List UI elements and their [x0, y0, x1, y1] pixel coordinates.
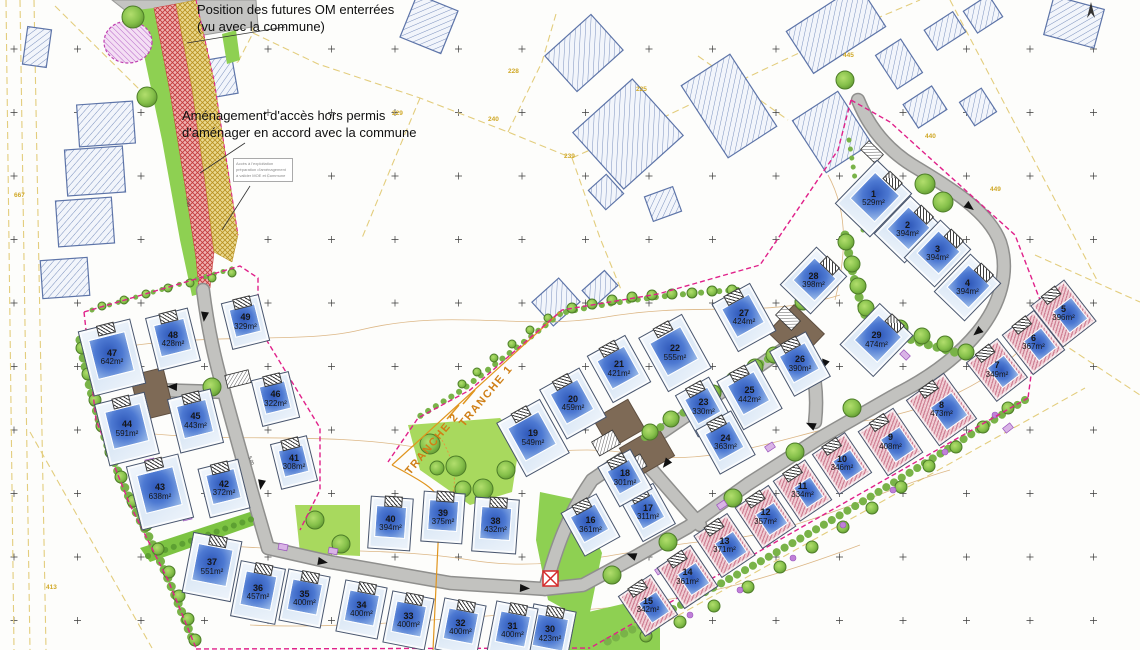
survey-cross — [900, 173, 907, 180]
lot-area: 428m² — [162, 340, 185, 348]
survey-cross — [392, 173, 399, 180]
lot-label: 16361m² — [571, 501, 610, 549]
tree-icon — [603, 566, 621, 584]
access-note: Aménagement d'accès hors permis d'aménag… — [182, 108, 416, 142]
tree-icon — [587, 299, 597, 309]
lot-area: 301m² — [614, 479, 637, 487]
lot-label: 46322m² — [257, 376, 294, 422]
survey-cross — [265, 490, 272, 497]
tree-icon — [473, 368, 481, 376]
tree-icon — [430, 461, 444, 475]
survey-cross — [773, 427, 780, 434]
tree-icon — [786, 443, 804, 461]
tree-icon — [915, 174, 935, 194]
existing-building — [55, 197, 114, 247]
tree-icon — [115, 471, 127, 483]
cadastral-parcel-number: 229 — [392, 110, 403, 117]
tree-icon — [923, 460, 935, 472]
lot-area: 334m² — [791, 491, 814, 499]
existing-building — [64, 146, 125, 196]
survey-cross — [519, 300, 526, 307]
survey-cross — [1090, 554, 1097, 561]
existing-building — [903, 86, 947, 128]
cadastral-parcel-number: 240 — [488, 116, 499, 123]
survey-cross — [138, 109, 145, 116]
cadastral-parcel-number: 667 — [14, 192, 25, 199]
cadastral-parcel-number: 449 — [990, 186, 1001, 193]
survey-cross — [455, 173, 462, 180]
survey-cross — [11, 554, 18, 561]
survey-cross — [1090, 109, 1097, 116]
utility-box — [765, 442, 776, 452]
survey-cross — [455, 363, 462, 370]
tree-icon — [774, 561, 786, 573]
survey-cross — [709, 617, 716, 624]
survey-cross — [74, 554, 81, 561]
survey-cross — [582, 363, 589, 370]
tree-icon — [977, 421, 989, 433]
survey-cross — [11, 363, 18, 370]
survey-cross — [138, 617, 145, 624]
lot-label: 9408m² — [870, 416, 911, 468]
existing-building — [924, 12, 966, 51]
lot-area: 346m² — [831, 464, 854, 472]
survey-cross — [11, 173, 18, 180]
lot-area: 361m² — [676, 578, 699, 586]
survey-cross — [74, 46, 81, 53]
survey-cross — [455, 236, 462, 243]
survey-cross — [709, 490, 716, 497]
lot-label: 14361m² — [668, 553, 707, 601]
survey-cross — [1090, 236, 1097, 243]
lot-area: 330m² — [692, 408, 715, 416]
lot-label: 33400m² — [388, 595, 429, 646]
survey-cross — [392, 46, 399, 53]
lot-label: 22555m² — [651, 323, 699, 383]
lot-area: 408m² — [879, 443, 902, 451]
existing-building — [876, 39, 923, 89]
survey-cross — [519, 363, 526, 370]
survey-cross — [138, 173, 145, 180]
survey-cross — [74, 490, 81, 497]
lot-area: 642m² — [101, 358, 124, 366]
tree-icon — [182, 613, 194, 625]
survey-cross — [836, 173, 843, 180]
survey-cross — [1027, 236, 1034, 243]
tree-icon — [850, 278, 866, 294]
lot-area: 342m² — [637, 606, 660, 614]
lot-area: 432m² — [484, 526, 507, 534]
flower-shrub-icon — [790, 555, 796, 561]
lot-area: 424m² — [733, 318, 756, 326]
survey-cross — [201, 363, 208, 370]
lot-label: 38432m² — [474, 499, 517, 552]
lot-area: 473m² — [930, 410, 953, 418]
lot-34: 34400m² — [335, 579, 387, 639]
lot-37: 37551m² — [182, 532, 243, 602]
lot-label: 35400m² — [284, 573, 325, 624]
survey-cross — [773, 617, 780, 624]
transformer-box — [543, 571, 558, 586]
lot-40: 40394m² — [367, 495, 414, 551]
survey-cross — [328, 617, 335, 624]
lot-label: 15342m² — [629, 582, 667, 629]
survey-cross — [328, 236, 335, 243]
lot-label: 43638m² — [134, 460, 186, 524]
survey-cross — [519, 173, 526, 180]
survey-cross — [582, 109, 589, 116]
survey-cross — [328, 427, 335, 434]
lot-area: 400m² — [293, 599, 316, 607]
om-note-line1: Position des futures OM enterrées — [197, 2, 394, 19]
tree-icon — [895, 481, 907, 493]
survey-cross — [138, 554, 145, 561]
survey-cross — [1027, 554, 1034, 561]
survey-cross — [963, 173, 970, 180]
lot-area: 394m² — [926, 254, 949, 262]
tree-icon — [663, 411, 679, 427]
survey-cross — [519, 554, 526, 561]
lot-39: 39375m² — [420, 490, 465, 544]
lot-label: 29474m² — [854, 312, 899, 368]
lot-area: 549m² — [522, 439, 545, 447]
survey-cross — [328, 46, 335, 53]
survey-cross — [328, 300, 335, 307]
survey-cross — [1090, 300, 1097, 307]
lot-32: 32400m² — [434, 597, 486, 650]
survey-cross — [900, 554, 907, 561]
lot-label: 32400m² — [440, 602, 481, 650]
lot-label: 40394m² — [370, 498, 411, 549]
lot-label: 28398m² — [793, 255, 834, 306]
survey-cross — [1027, 46, 1034, 53]
tree-icon — [228, 269, 236, 277]
lot-42: 42372m² — [197, 458, 250, 518]
lot-49: 49329m² — [220, 294, 269, 350]
lot-label: 12357m² — [746, 493, 785, 541]
lot-area: 390m² — [789, 365, 812, 373]
tree-icon — [659, 533, 677, 551]
cadastral-parcel-number: 440 — [925, 133, 936, 140]
lot-area: 329m² — [234, 323, 257, 331]
lot-label: 19549m² — [509, 408, 557, 468]
survey-cross — [392, 236, 399, 243]
survey-cross — [392, 363, 399, 370]
om-note: Position des futures OM enterrées (vu av… — [197, 2, 394, 36]
survey-cross — [1027, 490, 1034, 497]
survey-cross — [836, 300, 843, 307]
tree-icon — [707, 286, 717, 296]
lot-area: 529m² — [862, 199, 885, 207]
lot-label: 31400m² — [492, 605, 533, 650]
survey-cross — [11, 46, 18, 53]
survey-cross — [773, 300, 780, 307]
lot-label: 26390m² — [780, 339, 820, 389]
tree-icon — [306, 511, 324, 529]
lot-label: 4394m² — [947, 262, 988, 313]
lot-area: 349m² — [986, 371, 1009, 379]
lot-47: 47642m² — [78, 318, 147, 396]
lot-label: 37551m² — [188, 537, 236, 597]
survey-cross — [11, 109, 18, 116]
survey-cross — [1090, 427, 1097, 434]
survey-cross — [519, 109, 526, 116]
survey-cross — [328, 173, 335, 180]
lot-35: 35400m² — [278, 568, 330, 628]
flower-shrub-icon — [840, 522, 846, 528]
existing-building — [545, 14, 623, 91]
existing-building — [22, 27, 51, 68]
tree-icon — [137, 87, 157, 107]
survey-cross — [74, 300, 81, 307]
lot-44: 44591m² — [94, 392, 160, 467]
lot-48: 48428m² — [145, 307, 201, 371]
flower-shrub-icon — [890, 487, 896, 493]
tree-icon — [490, 354, 498, 362]
lot-label: 42372m² — [204, 464, 244, 513]
survey-cross — [265, 46, 272, 53]
survey-cross — [138, 300, 145, 307]
survey-cross — [328, 363, 335, 370]
lot-label: 21421m² — [598, 343, 640, 395]
existing-building — [1044, 0, 1105, 48]
tree-icon — [844, 256, 860, 272]
tree-icon — [607, 295, 617, 305]
lot-46: 46322m² — [250, 371, 299, 427]
flower-shrub-icon — [687, 612, 693, 618]
survey-cross — [265, 300, 272, 307]
survey-cross — [74, 427, 81, 434]
lot-label: 49329m² — [227, 299, 264, 345]
existing-building — [77, 101, 136, 147]
lot-area: 394m² — [896, 230, 919, 238]
lot-area: 457m² — [247, 593, 270, 601]
lot-area: 394m² — [379, 524, 402, 532]
survey-cross — [963, 617, 970, 624]
survey-cross — [1027, 617, 1034, 624]
tree-icon — [163, 566, 175, 578]
lot-45: 45443m² — [166, 388, 223, 453]
tree-icon — [933, 192, 953, 212]
lot-43: 43638m² — [126, 453, 194, 530]
flower-shrub-icon — [942, 449, 948, 455]
lot-label: 10346m² — [823, 440, 861, 487]
lot-label: 20459m² — [551, 376, 595, 431]
survey-cross — [582, 236, 589, 243]
lot-38: 38432m² — [471, 496, 520, 554]
lot-area: 363m² — [714, 443, 737, 451]
survey-cross — [138, 236, 145, 243]
survey-cross — [836, 554, 843, 561]
existing-building — [573, 79, 683, 189]
lot-area: 357m² — [754, 518, 777, 526]
tree-icon — [446, 456, 466, 476]
survey-cross — [74, 363, 81, 370]
lot-33: 33400m² — [382, 590, 434, 650]
existing-building — [532, 278, 580, 326]
survey-cross — [646, 236, 653, 243]
lot-area: 311m² — [637, 513, 659, 521]
survey-cross — [709, 173, 716, 180]
lot-area: 443m² — [184, 422, 207, 430]
lot-area: 555m² — [664, 354, 687, 362]
lot-label: 13371m² — [705, 521, 744, 570]
survey-cross — [11, 490, 18, 497]
dimension-mark: 3.50 — [185, 198, 191, 207]
survey-cross — [646, 173, 653, 180]
lot-area: 398m² — [802, 281, 825, 289]
lot-area: 400m² — [397, 621, 420, 629]
survey-cross — [11, 236, 18, 243]
tree-icon — [674, 616, 686, 628]
survey-cross — [519, 490, 526, 497]
lot-label: 7349m² — [978, 346, 1016, 394]
lot-label: 39375m² — [423, 493, 463, 542]
exploitation-access-note: Accès à l'exploitation préparation d'amé… — [233, 158, 293, 182]
survey-cross — [392, 554, 399, 561]
lot-label: 36457m² — [236, 565, 280, 620]
lot-area: 371m² — [713, 546, 736, 554]
lot-label: 25442m² — [728, 368, 771, 422]
lot-label: 34400m² — [341, 584, 382, 635]
tree-icon — [122, 6, 144, 28]
tree-icon — [742, 581, 754, 593]
tree-icon — [458, 380, 466, 388]
lot-area: 551m² — [201, 568, 224, 576]
carport-box — [225, 370, 251, 388]
lot-label: 27424m² — [723, 291, 765, 344]
survey-cross — [646, 46, 653, 53]
lot-area: 442m² — [738, 396, 761, 404]
survey-cross — [900, 617, 907, 624]
existing-building — [644, 187, 681, 222]
tree-icon — [642, 424, 658, 440]
tree-icon — [866, 502, 878, 514]
access-note-line1: Aménagement d'accès hors permis — [182, 108, 416, 125]
lot-area: 423m² — [539, 635, 562, 643]
lot-area: 591m² — [116, 430, 139, 438]
survey-cross — [265, 363, 272, 370]
survey-cross — [11, 300, 18, 307]
survey-cross — [963, 554, 970, 561]
lot-41: 41308m² — [270, 435, 318, 490]
existing-building — [786, 0, 885, 73]
survey-cross — [963, 490, 970, 497]
lot-label: 24363m² — [706, 418, 745, 467]
lot-label: 6367m² — [1014, 318, 1053, 367]
survey-cross — [265, 427, 272, 434]
survey-cross — [455, 554, 462, 561]
cadastral-parcel-number: 228 — [508, 68, 519, 75]
survey-cross — [836, 617, 843, 624]
survey-cross — [963, 46, 970, 53]
survey-cross — [519, 46, 526, 53]
existing-building — [40, 257, 90, 298]
existing-building — [400, 0, 458, 54]
lot-label: 8473m² — [919, 382, 964, 437]
tree-icon — [508, 340, 516, 348]
tree-icon — [836, 71, 854, 89]
tree-icon — [950, 441, 962, 453]
survey-cross — [201, 617, 208, 624]
lot-36: 36457m² — [230, 560, 286, 625]
tree-icon — [627, 292, 637, 302]
lot-area: 459m² — [562, 404, 585, 412]
survey-cross — [773, 173, 780, 180]
cadastral-parcel-number: 445 — [843, 52, 854, 59]
survey-cross — [519, 236, 526, 243]
lot-area: 400m² — [350, 610, 373, 618]
tree-icon — [526, 326, 534, 334]
lot-area: 400m² — [501, 631, 524, 639]
existing-building — [959, 88, 996, 126]
site-plan: Position des futures OM enterrées (vu av… — [0, 0, 1140, 650]
cadastral-parcel-number: 413 — [46, 584, 57, 591]
survey-cross — [1027, 109, 1034, 116]
tree-icon — [152, 543, 164, 555]
cadastral-parcel-number: 239 — [564, 153, 575, 160]
lot-area: 372m² — [213, 489, 236, 497]
tree-icon — [708, 600, 720, 612]
survey-cross — [709, 236, 716, 243]
survey-cross — [74, 617, 81, 624]
lot-area: 394m² — [956, 288, 979, 296]
survey-cross — [709, 46, 716, 53]
tree-icon — [914, 328, 930, 344]
survey-cross — [1090, 617, 1097, 624]
survey-cross — [392, 300, 399, 307]
lot-area: 638m² — [149, 493, 172, 501]
survey-cross — [328, 490, 335, 497]
lot-area: 375m² — [432, 518, 455, 526]
tree-icon — [843, 399, 861, 417]
survey-cross — [455, 300, 462, 307]
tree-icon — [806, 541, 818, 553]
survey-cross — [900, 363, 907, 370]
survey-cross — [1090, 490, 1097, 497]
utility-box — [900, 350, 911, 361]
tree-icon — [937, 336, 953, 352]
survey-cross — [1027, 173, 1034, 180]
utility-box — [328, 547, 338, 555]
lot-area: 367m² — [1022, 343, 1045, 351]
survey-cross — [1027, 427, 1034, 434]
lot-label: 47642m² — [86, 325, 138, 390]
lot-label: 41308m² — [276, 440, 312, 485]
utility-box — [278, 543, 288, 551]
lot-label: 48428m² — [152, 313, 194, 366]
survey-cross — [1090, 173, 1097, 180]
tree-icon — [687, 288, 697, 298]
survey-cross — [773, 46, 780, 53]
lot-label: 11334m² — [784, 467, 821, 514]
survey-cross — [265, 236, 272, 243]
lot-label: 44591m² — [102, 398, 152, 460]
tree-icon — [838, 234, 854, 250]
cadastral-parcel-number: 225 — [636, 86, 647, 93]
lot-area: 400m² — [449, 628, 472, 636]
survey-cross — [455, 46, 462, 53]
survey-cross — [582, 173, 589, 180]
lot-area: 474m² — [865, 341, 888, 349]
lot-area: 322m² — [264, 400, 287, 408]
lot-label: 45443m² — [174, 394, 217, 448]
lot-31: 31400m² — [486, 600, 538, 650]
om-note-line2: (vu avec la commune) — [197, 19, 394, 36]
lot-area: 361m² — [579, 526, 602, 534]
survey-cross — [392, 427, 399, 434]
lot-area: 421m² — [608, 370, 631, 378]
